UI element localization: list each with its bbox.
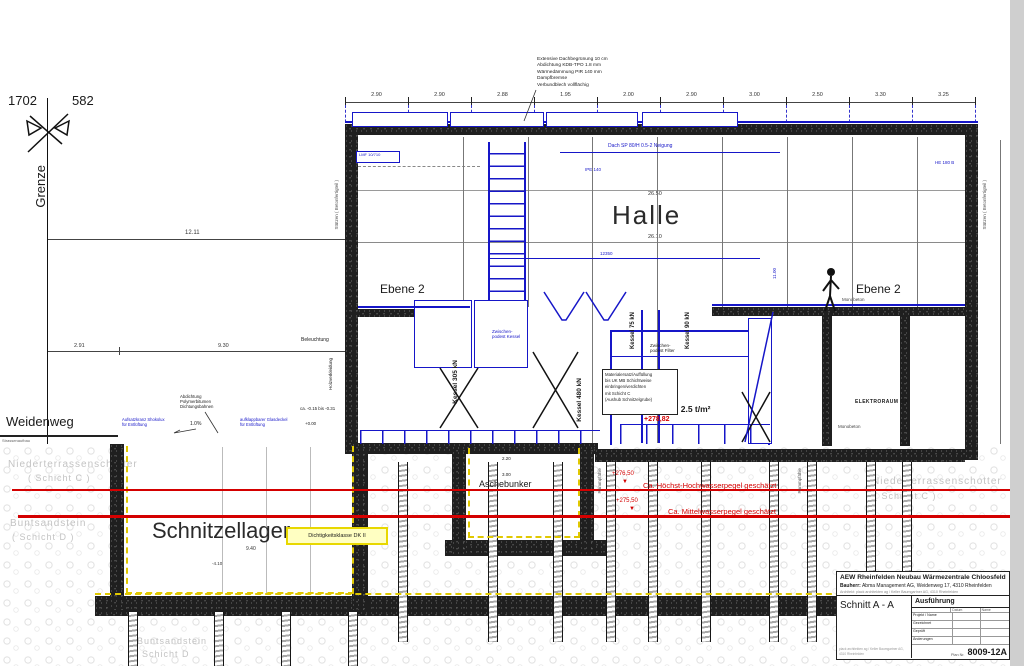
kessel-305-label: Kessel 305 kN	[452, 360, 460, 404]
membrane-note: Abdichtung Polymerbitumen Dichtungsbahne…	[180, 394, 213, 409]
drawing-sheet: 1702 582 Grenze Weidenweg Strassenaufbau…	[0, 0, 1024, 666]
funnel-left	[544, 292, 584, 320]
top-dimension-value: 2.90	[425, 92, 455, 98]
street-label: Weidenweg	[6, 414, 74, 429]
level2-left-label: Ebene 2	[380, 282, 425, 296]
dim-stair-blue: 12350	[600, 251, 613, 256]
slope-arrow	[174, 429, 196, 433]
midwater-elev: +275,50	[616, 498, 638, 505]
roof-vent-box	[352, 112, 448, 127]
col-datum: Datum	[950, 608, 979, 612]
roof-note-line: Verbundblech vollflächig	[537, 83, 608, 89]
paper-margin	[1010, 0, 1024, 666]
roof-vent-box	[450, 112, 544, 127]
beam-lmf-label: LMF 10/710	[359, 153, 380, 158]
dim-pit-width: 9.40	[246, 547, 256, 553]
kettle-left	[414, 300, 472, 368]
monobeton-label-upper: Monobeton	[842, 297, 865, 302]
top-dimension-value: 2.88	[488, 92, 518, 98]
architect-value: plack architekten ag / Keller Baumgartne…	[856, 590, 958, 594]
level2-slab-right	[712, 307, 965, 316]
level2-right-label: Ebene 2	[856, 282, 901, 296]
highwater-elev: +276,50	[612, 471, 634, 478]
chip-store-wall-left	[110, 444, 124, 610]
dim-hall-lower: 26.10	[648, 234, 662, 240]
level2-right-edge	[712, 304, 965, 306]
roof-beam-label: Dach SP 80/H 0.5-2 Neigung	[608, 144, 672, 150]
top-dimension-value: 3.30	[866, 92, 896, 98]
dim-left-total: 12.11	[185, 230, 200, 237]
plan-number: 8009-12A	[967, 647, 1007, 657]
monobeton-label-lower: Monobeton	[838, 424, 861, 429]
plan-number-label: Plan Nr.	[951, 653, 965, 657]
ash-bunker-wall-left	[452, 446, 466, 554]
ash-bunker-label: Aschebunker	[479, 479, 532, 490]
phase-label: Ausführung	[912, 596, 1009, 608]
top-dimension-value: 2.90	[677, 92, 707, 98]
dim-pit-neg: -4.10	[212, 561, 222, 566]
membrane-leader	[205, 412, 218, 433]
title-block-footnote: plack architekten ag / Keller Baumgartne…	[839, 647, 909, 655]
boundary-marker-icon	[27, 114, 69, 152]
level-plus27882: +278,82	[644, 416, 670, 424]
ash-bunker-wall-right	[580, 446, 594, 554]
dim-bunker-a: 2.20	[502, 456, 511, 461]
top-dimension-value: 1.95	[551, 92, 581, 98]
hall-dashed-level	[358, 166, 480, 167]
roof-buildup-note: Extensive Dachbegrünung 10 cm Abdichtung…	[537, 57, 608, 89]
parcel-number-right: 582	[72, 93, 94, 108]
soil-bottom-layer: Schicht D	[142, 649, 190, 660]
soil-upper-right: Niederterrassenschotter	[872, 476, 1008, 488]
lighting-label: Beleuchtung	[301, 338, 329, 344]
stair-dim-line	[490, 258, 760, 259]
electrical-room-label: ELEKTRORAUM GA	[855, 400, 908, 406]
dim-left-a: 2.91	[74, 343, 85, 349]
soil-lower-left: Buntsandstein	[10, 518, 86, 530]
ash-bunker-seal-lining	[468, 448, 580, 538]
hall-line-lower	[358, 242, 965, 243]
dim-ground-range: ca. -0.15 bis -0.31	[300, 406, 335, 411]
level2-left-edge	[358, 306, 470, 308]
architect-label: Architekt:	[840, 590, 855, 594]
client-value: Abma Management AG, Weidenweg 17, 4310 R…	[862, 583, 992, 589]
dim-left-b: 9.30	[218, 343, 229, 349]
mezz-filter-line: podest Filter	[650, 348, 675, 353]
street-buildup-label: Strassenaufbau	[2, 439, 30, 444]
soil-upper-left-layer: ( Schicht C )	[28, 473, 91, 484]
seal-class-highlight: Dichtigkeitsklasse DK II	[286, 527, 388, 545]
soil-lower-left-layer: ( Schicht D )	[12, 532, 75, 543]
columns-left-label: Stützen ( Betonfertigteil )	[334, 180, 339, 230]
tb-row-label: Geprüft	[912, 629, 952, 636]
highwater-marker-icon: ▼	[622, 479, 628, 486]
interior-wall-b	[900, 316, 910, 446]
hall-column-line	[917, 137, 918, 307]
project-title: AEW Rheinfelden Neubau Wärmezentrale Chl…	[840, 574, 1006, 582]
top-dimension-value: 3.00	[740, 92, 770, 98]
boundary-line	[47, 98, 48, 460]
boundary-label: Grenze	[33, 165, 48, 208]
vent-curb-note: Aufsatzkranz Shokolux für Entlüftung	[122, 418, 165, 428]
foundation-pile	[281, 612, 291, 666]
hall-wall-left	[345, 124, 358, 454]
hall-column-line	[787, 137, 788, 307]
hall-column-line	[592, 137, 593, 443]
kessel-90-label: Kessel 90 kN	[685, 312, 692, 349]
stair-tower	[488, 142, 526, 318]
hall-column-line	[852, 137, 853, 307]
roof-beam-line	[560, 152, 780, 153]
hall-wall-right	[965, 124, 978, 460]
left-dimension-line-1	[48, 239, 345, 240]
brace-x-mid	[533, 352, 578, 428]
highwater-label: Ca. Höchst-Hochwasserpegel geschätzt	[643, 482, 776, 491]
top-dimension-value: 2.90	[362, 92, 392, 98]
material-note-box: Materialersatz/Auffüllung bis UK MB Schi…	[602, 369, 678, 415]
mezz-kessel-line: podest Kessel	[492, 334, 520, 339]
roof-note-line: Abdichtung KDB-TPO 1.8 mm	[537, 63, 608, 69]
street-surface-line	[0, 435, 118, 437]
beam-ipe-label: IPE 140	[585, 167, 601, 172]
foundation-pile	[348, 612, 358, 666]
foundation-pile	[128, 612, 138, 666]
glass-lid-line: für Entlüftung	[240, 423, 288, 428]
kessel-75-label: Kessel 75 kN	[630, 312, 637, 349]
soil-bottom: Buntsandstein	[137, 636, 207, 647]
top-dimension-value: 2.50	[803, 92, 833, 98]
interior-wall-a	[822, 316, 832, 446]
slope-label: 1.0%	[190, 422, 201, 428]
dim-right-vertical: 11.00	[772, 268, 777, 279]
dim-hall-upper: 26.50	[648, 191, 662, 197]
midwater-label: Ca. Mittelwasserpegel geschätzt	[668, 508, 776, 517]
dim-bunker-b: 3.00	[502, 472, 511, 477]
kessel-frame-rail	[610, 356, 766, 357]
mezz-filter-note: Zwischen- podest Filter	[650, 343, 675, 354]
client-label: Bauherr:	[840, 583, 861, 589]
chip-store-label: Schnitzellager	[152, 518, 290, 544]
equipment-strip-b	[620, 424, 770, 444]
sheet-title: Schnitt A - A	[837, 596, 911, 616]
kessel-480-label: Kessel 480 kN	[576, 378, 584, 422]
hall-label: Halle	[612, 200, 681, 231]
seal-class-label: Dichtigkeitsklasse DK II	[308, 533, 365, 539]
hall-column-line	[528, 137, 529, 307]
title-block: AEW Rheinfelden Neubau Wärmezentrale Chl…	[836, 571, 1010, 660]
parcel-number-left: 1702	[8, 93, 37, 108]
tb-row-label: Projekt / Name	[912, 613, 952, 620]
hall-column-line	[463, 137, 464, 307]
left-dimension-line-2	[48, 351, 345, 352]
top-dimension-value: 2.00	[614, 92, 644, 98]
roof-vent-box	[642, 112, 738, 127]
pile-label-a: Rammpfähle	[597, 468, 602, 494]
roof-vent-box	[546, 112, 638, 127]
equipment-strip-a	[360, 430, 600, 444]
membrane-note-line: Dichtungsbahnen	[180, 404, 213, 409]
midwater-marker-icon: ▼	[629, 506, 635, 513]
mezz-kessel-note: Zwischen- podest Kessel	[492, 329, 520, 340]
col-name: Name	[980, 608, 1009, 612]
columns-right-label: Stützen ( Betonfertigteil )	[982, 180, 987, 230]
hall-column-line	[722, 137, 723, 307]
pile-label-b: Rammpfähle	[797, 468, 802, 494]
foundation-pile	[214, 612, 224, 666]
ground-slab-right	[595, 449, 965, 462]
tb-row-label: Gezeichnet	[912, 621, 952, 628]
vent-curb-line: für Entlüftung	[122, 423, 165, 428]
left-dim-tick	[119, 347, 120, 355]
top-dimension-value: 3.25	[929, 92, 959, 98]
beam-he-label: HE 180 B	[935, 160, 954, 165]
tb-row-label: Änderungen	[912, 637, 952, 644]
wood-cladding-label: Holzverkleidung	[328, 358, 333, 390]
dim-zero-level: +0.00	[305, 421, 316, 426]
material-note-line: (Aushub Schnitzelgrube)	[605, 397, 675, 403]
glass-lid-note: aufklappbarer Glasdeckel für Entlüftung	[240, 418, 288, 428]
right-dim-line	[1000, 140, 1001, 450]
